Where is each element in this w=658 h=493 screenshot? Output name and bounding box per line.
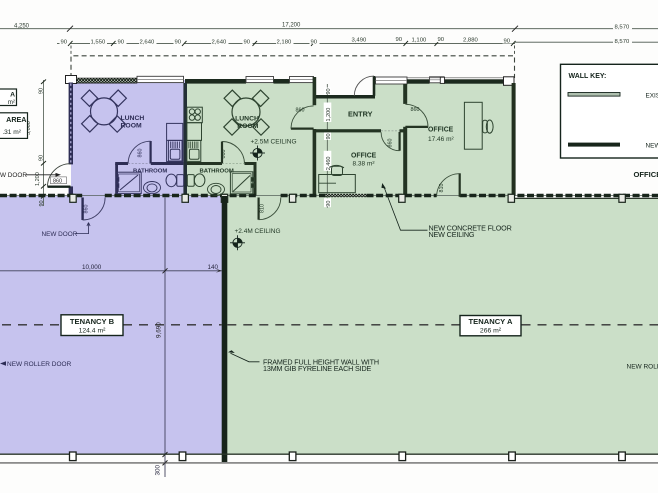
svg-text:.31 m²: .31 m² xyxy=(2,129,21,136)
svg-text:TENANCY B: TENANCY B xyxy=(70,317,115,326)
svg-text:WALL KEY:: WALL KEY: xyxy=(569,73,607,80)
svg-text:NEW DOOR: NEW DOOR xyxy=(42,231,78,238)
svg-text:860: 860 xyxy=(84,205,90,214)
svg-text:ROOM: ROOM xyxy=(121,123,142,130)
svg-text:810: 810 xyxy=(260,204,266,213)
svg-text:90: 90 xyxy=(39,88,45,94)
svg-text:860: 860 xyxy=(411,107,420,113)
svg-text:NEW ROLLER DOOR: NEW ROLLER DOOR xyxy=(7,361,72,368)
svg-text:90: 90 xyxy=(311,39,318,45)
svg-text:NEW WALL: NEW WALL xyxy=(646,143,658,150)
svg-text:860: 860 xyxy=(388,139,394,148)
svg-text:90: 90 xyxy=(39,200,45,206)
svg-text:TENANCY A: TENANCY A xyxy=(469,317,513,326)
svg-text:90: 90 xyxy=(326,88,332,94)
svg-text:OFFICE: OFFICE xyxy=(428,127,454,134)
svg-text:OFFICE AREA: OFFICE AREA xyxy=(634,170,658,179)
svg-text:90: 90 xyxy=(118,39,125,45)
svg-text:1,200: 1,200 xyxy=(35,172,41,186)
svg-text:BATHROOM: BATHROOM xyxy=(133,168,167,174)
svg-text:860: 860 xyxy=(221,150,227,159)
svg-text:OFFICE: OFFICE xyxy=(351,153,377,160)
svg-text:9,690: 9,690 xyxy=(156,322,163,338)
svg-text:2,180: 2,180 xyxy=(277,40,292,46)
svg-text:266 m²: 266 m² xyxy=(480,327,502,334)
svg-text:2,640: 2,640 xyxy=(140,40,155,46)
svg-text:90: 90 xyxy=(326,133,332,139)
svg-text:860: 860 xyxy=(138,149,144,158)
svg-text:90: 90 xyxy=(244,39,251,45)
svg-text:+2.4M CEILING: +2.4M CEILING xyxy=(235,228,281,235)
svg-text:ENTRY: ENTRY xyxy=(348,109,373,118)
svg-text:13MM GIB FYRELINE EACH SIDE: 13MM GIB FYRELINE EACH SIDE xyxy=(263,364,372,373)
svg-text:90: 90 xyxy=(326,201,332,207)
svg-text:1,550: 1,550 xyxy=(91,40,106,46)
svg-text:860: 860 xyxy=(53,179,62,185)
svg-text:3,490: 3,490 xyxy=(352,38,367,44)
svg-text:810: 810 xyxy=(439,184,445,193)
svg-text:10,000: 10,000 xyxy=(82,264,102,271)
svg-text:4,250: 4,250 xyxy=(14,24,30,30)
svg-text:+2.5M CEILING: +2.5M CEILING xyxy=(251,138,297,145)
svg-text:17,200: 17,200 xyxy=(282,23,301,29)
svg-text:W DOOR: W DOOR xyxy=(0,172,27,179)
svg-text:NEW CEILING: NEW CEILING xyxy=(429,230,475,239)
svg-text:860: 860 xyxy=(296,107,305,113)
svg-text:2,640: 2,640 xyxy=(212,40,227,46)
svg-text:1,200: 1,200 xyxy=(326,108,332,122)
svg-text:124.4 m²: 124.4 m² xyxy=(79,327,107,334)
svg-text:90: 90 xyxy=(396,37,403,43)
svg-text:140: 140 xyxy=(208,264,219,271)
svg-text:2,880: 2,880 xyxy=(463,38,478,44)
svg-text:90: 90 xyxy=(438,37,445,43)
svg-text:8,570: 8,570 xyxy=(615,25,630,31)
svg-text:17.46 m²: 17.46 m² xyxy=(428,136,454,143)
svg-text:NEW ROLLER DOOR: NEW ROLLER DOOR xyxy=(627,363,658,370)
svg-text:8.38 m²: 8.38 m² xyxy=(353,161,376,168)
svg-text:A: A xyxy=(10,92,15,99)
svg-text:8,570: 8,570 xyxy=(615,39,630,45)
svg-text:90: 90 xyxy=(504,39,511,45)
svg-text:90: 90 xyxy=(39,155,45,161)
svg-text:m²: m² xyxy=(8,99,15,106)
svg-text:AREA: AREA xyxy=(6,115,26,124)
svg-text:EXISTING: EXISTING xyxy=(646,92,658,99)
svg-text:90: 90 xyxy=(61,39,68,45)
svg-text:ROOM: ROOM xyxy=(237,123,258,130)
svg-text:LUNCH: LUNCH xyxy=(235,115,259,122)
svg-text:LUNCH: LUNCH xyxy=(121,115,145,122)
svg-text:300: 300 xyxy=(155,464,162,475)
svg-text:BATHROOM: BATHROOM xyxy=(200,168,234,174)
svg-text:1,100: 1,100 xyxy=(412,38,427,44)
svg-text:90: 90 xyxy=(175,39,182,45)
